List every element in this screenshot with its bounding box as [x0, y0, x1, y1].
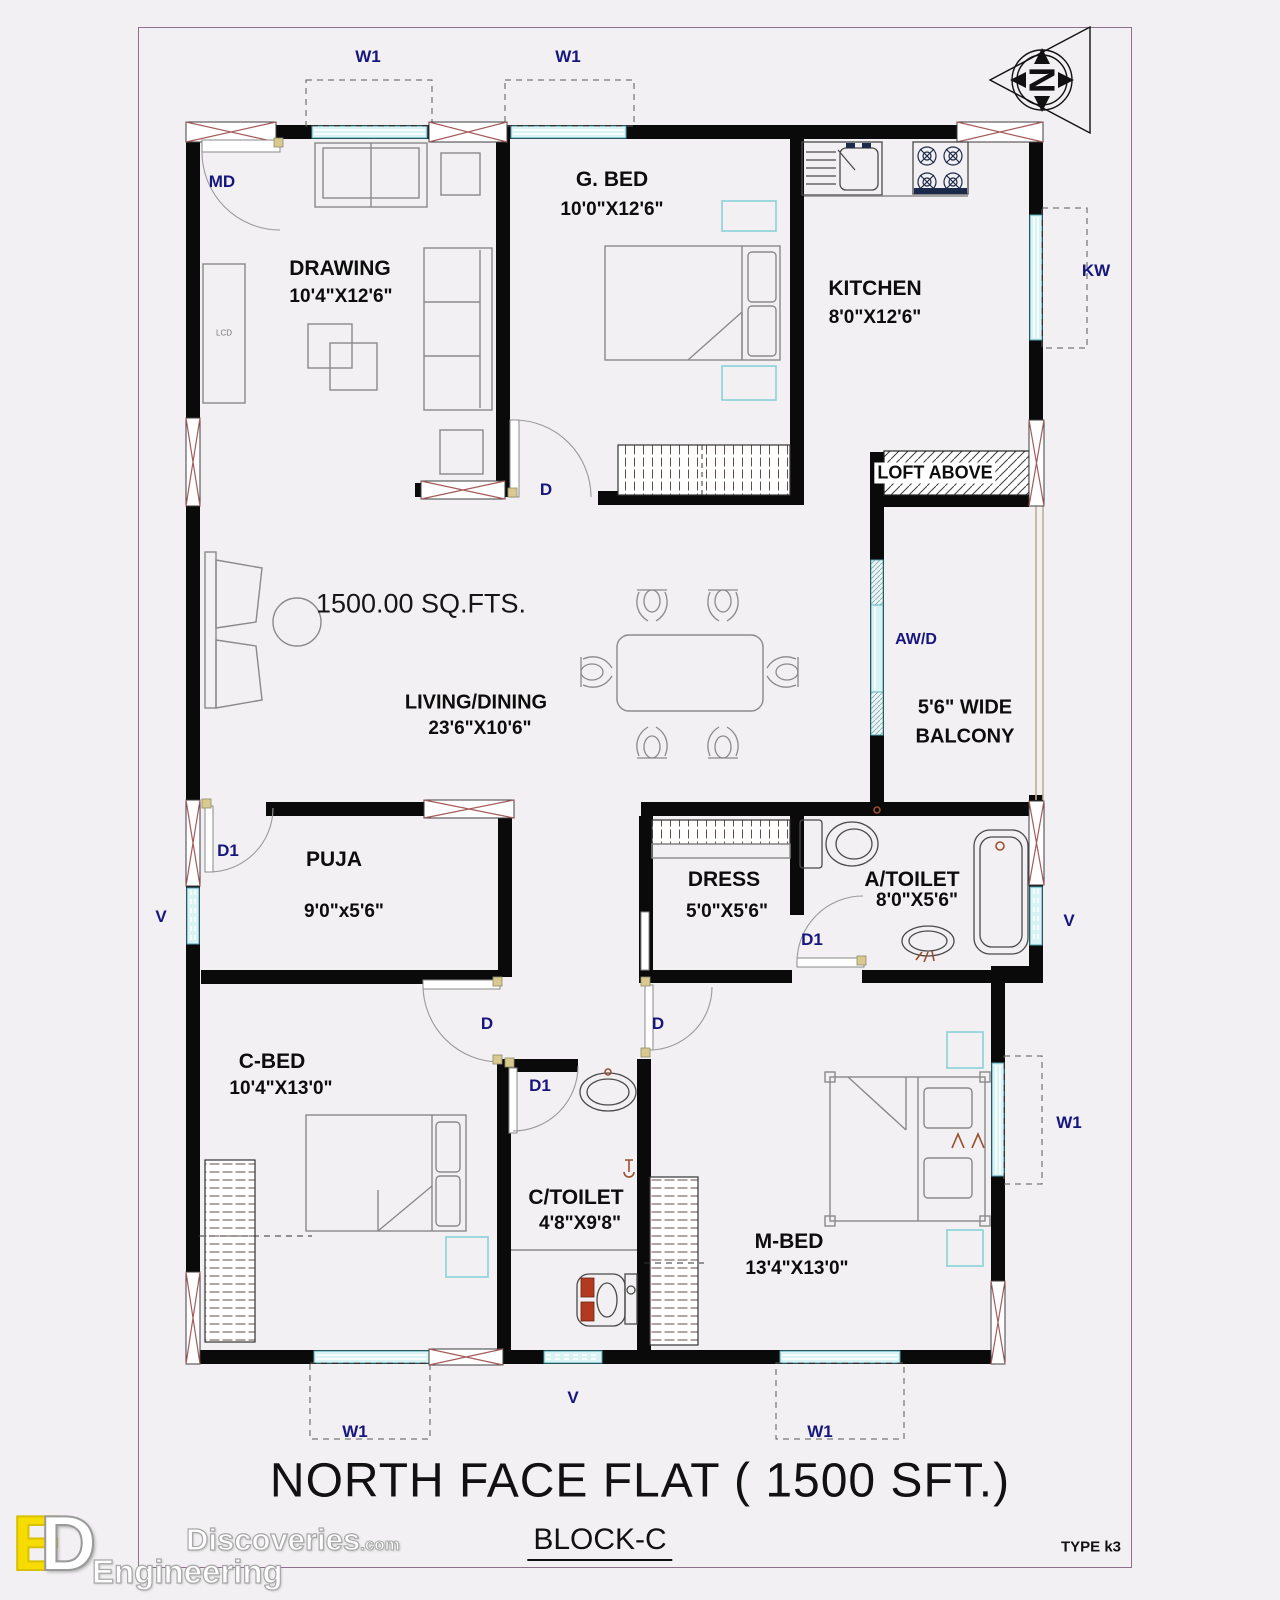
- tv-unit-label: LCD: [216, 329, 232, 338]
- window-kw: [1030, 215, 1042, 340]
- room-dims-puja: 9'0"x5'6": [304, 901, 384, 923]
- cbed-furniture: [198, 1115, 488, 1342]
- window-awd: [871, 560, 883, 735]
- room-name-cbed: C-BED: [239, 1050, 306, 1074]
- room-dims-atoilet: 8'0"X5'6": [876, 890, 958, 912]
- north-letter: N: [1022, 67, 1063, 93]
- room-name-ctoilet: C/TOILET: [528, 1186, 623, 1210]
- label-kw: KW: [1082, 261, 1110, 281]
- room-name-drawing: DRAWING: [289, 257, 391, 281]
- room-name-gbed: G. BED: [576, 168, 648, 192]
- balcony-line1: 5'6" WIDE: [918, 697, 1012, 720]
- label-w1-bottom-right: W1: [807, 1422, 833, 1442]
- window-w1-top-right: [511, 126, 626, 138]
- room-dims-drawing: 10'4"X12'6": [289, 286, 392, 308]
- room-dims-living: 23'6"X10'6": [428, 718, 531, 740]
- room-name-dress: DRESS: [688, 868, 760, 892]
- label-d-gbed: D: [540, 480, 552, 500]
- room-name-atoilet: A/TOILET: [864, 868, 959, 892]
- drawing-room-furniture: [203, 143, 492, 474]
- label-w1-bottom-left: W1: [342, 1422, 368, 1442]
- room-dims-gbed: 10'0"X12'6": [560, 199, 663, 221]
- window-v-bottom: [544, 1351, 602, 1363]
- watermark-logo: ED: [12, 1504, 96, 1582]
- window-v-right: [1030, 887, 1042, 945]
- label-d1-ctoilet: D1: [529, 1076, 551, 1096]
- label-v-left: V: [155, 907, 166, 927]
- room-dims-cbed: 10'4"X13'0": [229, 1078, 332, 1100]
- window-w1-bottom-left: [314, 1351, 429, 1363]
- label-d-corridor-left: D: [481, 1014, 493, 1034]
- watermark-division: Engineering: [92, 1553, 283, 1591]
- label-d1-puja: D1: [217, 841, 239, 861]
- gbed-furniture: [605, 201, 790, 495]
- label-v-bottom: V: [567, 1388, 578, 1408]
- mbed-furniture: [644, 1032, 990, 1345]
- balcony-edge: [1036, 506, 1043, 800]
- north-arrow-icon: N: [990, 27, 1090, 133]
- label-d-corridor-right: D: [652, 1014, 664, 1034]
- area-note: 1500.00 SQ.FTS.: [316, 589, 526, 620]
- window-w1-mbed: [992, 1063, 1004, 1176]
- floor-plan-drawing: N: [0, 0, 1280, 1600]
- floor-plan-sheet: N W1 W1 MD KW AW/D V V V D D D D1 D1 D1 …: [0, 0, 1280, 1600]
- sheet-title: NORTH FACE FLAT ( 1500 SFT.): [270, 1454, 1010, 1509]
- room-dims-dress: 5'0"X5'6": [686, 901, 768, 923]
- label-v-right: V: [1063, 911, 1074, 931]
- room-name-living: LIVING/DINING: [405, 692, 547, 715]
- balcony-line2: BALCONY: [916, 726, 1015, 749]
- window-w1-top-left: [312, 126, 427, 138]
- room-name-loft: LOFT ABOVE: [874, 463, 995, 484]
- logo-letter-d: D: [40, 1499, 96, 1587]
- door-dress: [641, 912, 649, 970]
- room-dims-ctoilet: 4'8"X9'8": [539, 1213, 621, 1235]
- label-awd: AW/D: [895, 631, 937, 649]
- window-w1-bottom-right: [780, 1351, 900, 1363]
- room-dims-mbed: 13'4"X13'0": [745, 1258, 848, 1280]
- label-md: MD: [209, 172, 235, 192]
- room-name-kitchen: KITCHEN: [828, 277, 921, 301]
- type-code: TYPE k3: [1061, 1539, 1121, 1556]
- label-w1-top-right: W1: [555, 47, 581, 67]
- label-d1-atoilet: D1: [801, 930, 823, 950]
- dress-furniture: [652, 820, 790, 858]
- label-w1-top-left: W1: [355, 47, 381, 67]
- room-dims-kitchen: 8'0"X12'6": [829, 307, 922, 329]
- kitchen-fixtures: [802, 142, 968, 196]
- room-name-mbed: M-BED: [755, 1230, 824, 1254]
- window-v-left: [187, 888, 199, 944]
- door-d1-puja: [202, 799, 273, 872]
- room-name-puja: PUJA: [306, 848, 362, 872]
- block-label: BLOCK-C: [527, 1523, 672, 1561]
- label-w1-mbed: W1: [1056, 1113, 1082, 1133]
